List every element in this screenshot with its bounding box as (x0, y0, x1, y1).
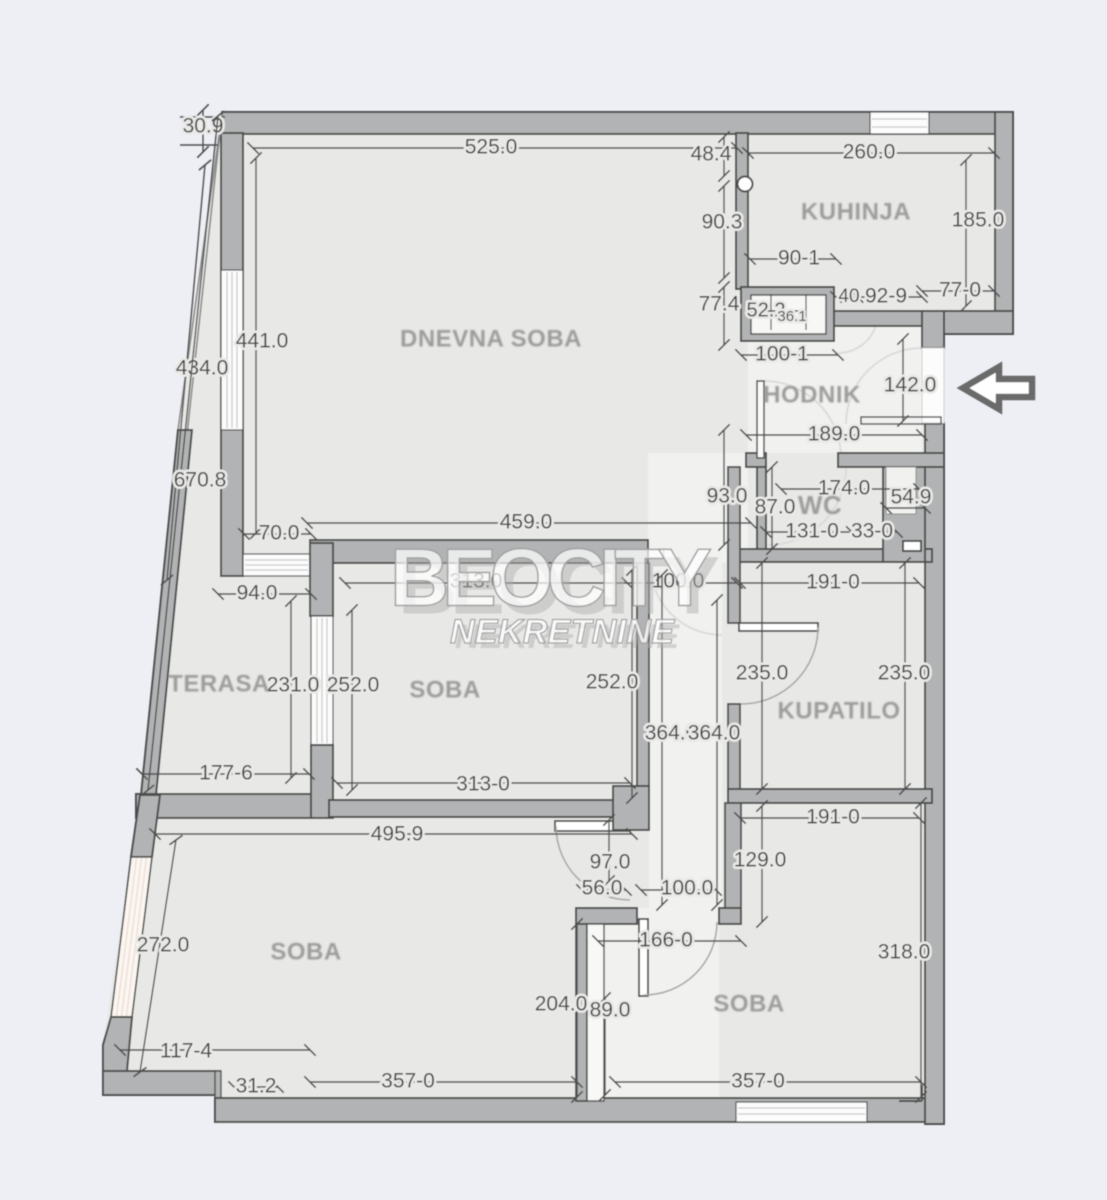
svg-text:BEOCITY: BEOCITY (390, 533, 712, 624)
svg-text:36.1: 36.1 (777, 308, 806, 325)
svg-text:129.0: 129.0 (734, 849, 787, 872)
svg-text:70.0: 70.0 (259, 522, 300, 545)
svg-text:87.0: 87.0 (755, 496, 796, 519)
svg-text:56.0: 56.0 (582, 877, 623, 900)
svg-text:90-1: 90-1 (778, 247, 820, 270)
svg-text:33-0: 33-0 (851, 520, 893, 543)
svg-text:92-9: 92-9 (865, 285, 907, 308)
svg-text:357-0: 357-0 (731, 1070, 785, 1093)
svg-text:235.0: 235.0 (878, 662, 931, 685)
svg-text:670.8: 670.8 (174, 469, 227, 492)
svg-text:HODNIK: HODNIK (763, 381, 861, 408)
svg-text:191-0: 191-0 (806, 571, 860, 594)
svg-text:97.0: 97.0 (590, 851, 631, 874)
svg-text:90.3: 90.3 (702, 211, 743, 234)
svg-text:357-0: 357-0 (381, 1070, 435, 1093)
svg-text:DNEVNA SOBA: DNEVNA SOBA (400, 325, 582, 352)
svg-text:100-1: 100-1 (755, 343, 809, 366)
svg-text:SOBA: SOBA (713, 990, 784, 1017)
svg-text:77.4: 77.4 (699, 293, 740, 316)
svg-text:93.0: 93.0 (707, 485, 748, 508)
svg-text:252.0: 252.0 (586, 671, 639, 694)
svg-text:459.0: 459.0 (500, 511, 553, 534)
svg-text:SOBA: SOBA (270, 938, 341, 965)
svg-text:54.9: 54.9 (891, 486, 932, 509)
svg-text:SOBA: SOBA (409, 676, 480, 703)
svg-text:252.0: 252.0 (327, 674, 380, 697)
svg-text:40: 40 (838, 286, 859, 307)
svg-text:495.9: 495.9 (371, 823, 424, 846)
svg-text:272.0: 272.0 (137, 934, 190, 957)
svg-text:177-6: 177-6 (199, 762, 253, 785)
svg-text:189.0: 189.0 (808, 423, 861, 446)
svg-text:185.0: 185.0 (952, 209, 1005, 232)
svg-text:131-0: 131-0 (785, 520, 839, 543)
svg-text:313-0: 313-0 (456, 773, 510, 796)
svg-text:WC: WC (798, 490, 842, 520)
svg-text:KUHINJA: KUHINJA (801, 198, 911, 225)
svg-text:166-0: 166-0 (639, 929, 693, 952)
svg-text:318.0: 318.0 (878, 941, 931, 964)
svg-text:142.0: 142.0 (884, 374, 937, 397)
svg-text:441.0: 441.0 (236, 330, 289, 353)
svg-text:TERASA: TERASA (168, 670, 270, 697)
svg-text:48.4: 48.4 (691, 143, 732, 166)
svg-text:NEKRETNINE: NEKRETNINE (450, 613, 675, 651)
svg-text:235.0: 235.0 (736, 662, 789, 685)
svg-text:117-4: 117-4 (160, 1040, 212, 1063)
svg-text:100.0: 100.0 (661, 877, 714, 900)
svg-text:31.2: 31.2 (236, 1075, 277, 1098)
svg-text:231.0: 231.0 (267, 674, 320, 697)
svg-text:434.0: 434.0 (176, 357, 229, 380)
svg-text:94.0: 94.0 (237, 582, 278, 605)
svg-text:KUPATILO: KUPATILO (777, 697, 900, 724)
svg-text:260.0: 260.0 (843, 141, 896, 164)
svg-text:204.0: 204.0 (535, 993, 588, 1016)
svg-text:364.0: 364.0 (688, 722, 741, 745)
svg-text:525.0: 525.0 (465, 136, 518, 159)
svg-text:191-0: 191-0 (806, 806, 860, 829)
svg-text:77-0: 77-0 (939, 279, 981, 302)
svg-text:89.0: 89.0 (590, 999, 631, 1022)
